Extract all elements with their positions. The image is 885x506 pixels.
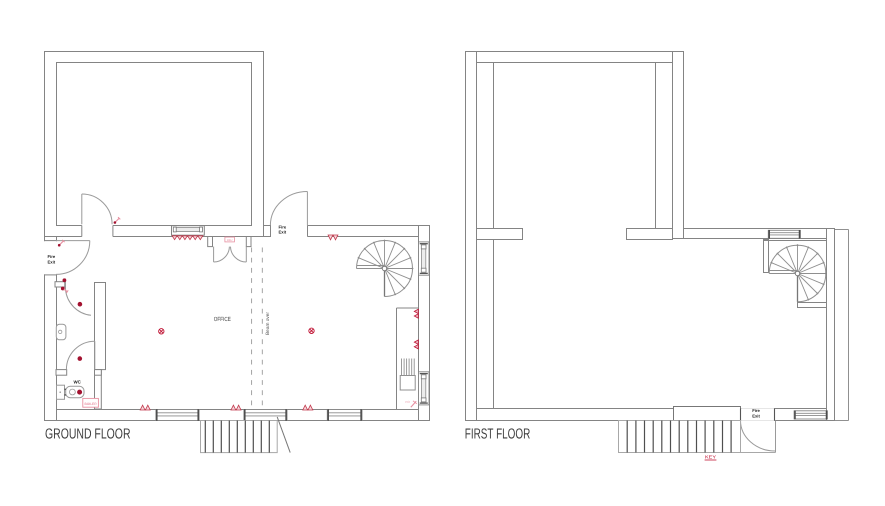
svg-text:FO: FO	[406, 400, 411, 404]
svg-text:WC: WC	[74, 380, 82, 385]
svg-text:KEY: KEY	[705, 455, 716, 460]
svg-text:GROUND FLOOR: GROUND FLOOR	[45, 426, 131, 442]
svg-text:FBU: FBU	[227, 238, 233, 242]
svg-text:Exit: Exit	[279, 230, 287, 235]
svg-text:Exit: Exit	[752, 414, 760, 419]
svg-text:OFFICE: OFFICE	[214, 316, 231, 323]
svg-text:Exit: Exit	[48, 260, 56, 265]
svg-text:BOILER: BOILER	[85, 402, 98, 406]
svg-text:Beam over: Beam over	[265, 312, 271, 335]
svg-text:FIRST FLOOR: FIRST FLOOR	[465, 426, 531, 442]
svg-text:Fire: Fire	[48, 254, 56, 259]
svg-text:Fire: Fire	[752, 408, 760, 413]
